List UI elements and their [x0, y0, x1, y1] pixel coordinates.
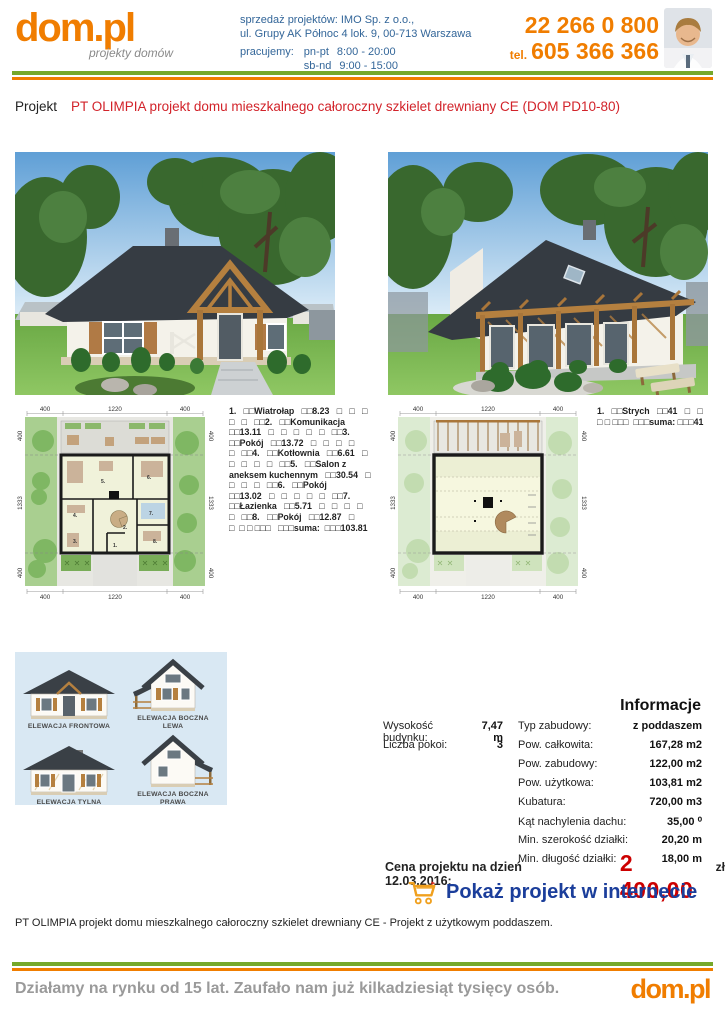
spec-row: Pow. całkowita: 167,28 m2	[518, 739, 702, 758]
footer-tagline: Działamy na rynku od 15 lat. Zaufało nam…	[15, 980, 559, 998]
ground-floor-room-list: 1. □□Wiatrołap □□8.23 □ □ □ □ □ □□2. □□K…	[229, 406, 379, 533]
plan-room-number: 8.	[153, 539, 158, 545]
header-rule-orange	[12, 77, 713, 80]
site-plan-ground-floor: 400 1220 400 400 1220 400 400 1333 400 4…	[15, 403, 215, 600]
cta-label: Pokaż projekt w internecie	[446, 881, 697, 904]
elevation-side-right: ELEWACJA BOCZNA PRAWA	[121, 732, 225, 808]
plan-room-number: 3.	[73, 539, 78, 545]
elevation-side-right-image	[123, 732, 223, 790]
header-rule-green	[12, 71, 713, 75]
sales-line-2: ul. Grupy AK Północ 4 lok. 9, 00-713 War…	[240, 27, 471, 41]
sales-line-1: sprzedaż projektów: IMO Sp. z o.o.,	[240, 13, 471, 27]
elevation-label: ELEWACJA TYLNA	[24, 799, 114, 807]
spec-value: 103,81 m2	[649, 777, 702, 789]
dim-label: 400	[40, 406, 51, 413]
spec-value: 20,20 m	[662, 834, 702, 846]
dim-label: 1333	[390, 496, 397, 510]
footer-logo: dom.pl	[631, 974, 711, 1005]
dim-label: 1220	[481, 594, 495, 600]
spec-value: z poddaszem	[633, 720, 702, 732]
spec-label: Kąt nachylenia dachu:	[518, 816, 626, 828]
hours-label: pracujemy:	[240, 45, 294, 74]
elevation-label: ELEWACJA BOCZNA LEWA	[128, 715, 218, 732]
dim-label: 1220	[108, 406, 122, 413]
header-contact-block: sprzedaż projektów: IMO Sp. z o.o., ul. …	[240, 13, 471, 73]
house-front-render-image	[15, 152, 335, 395]
plan-room-number: 1.	[113, 543, 118, 549]
spec-label: Liczba pokoi:	[383, 739, 447, 751]
header-phones: 22 266 0 800 tel.605 366 366	[510, 12, 659, 65]
spec-label: Min. szerokość działki:	[518, 834, 628, 846]
dim-label: 1220	[108, 594, 122, 600]
site-plan-attic: 400 1220 400 400 1220 400 400 1333 400 4…	[388, 403, 588, 600]
elevation-front-image	[19, 664, 119, 722]
ground-floor-plan-image: 400 1220 400 400 1220 400 400 1333 400 4…	[15, 403, 215, 600]
spec-row: Typ zabudowy: z poddaszem	[518, 720, 702, 739]
dim-label: 400	[17, 430, 24, 441]
render-garden-view	[388, 152, 708, 395]
dim-label: 400	[580, 568, 587, 579]
project-title-label: Projekt	[15, 99, 57, 114]
header-logo[interactable]: dom.pl projekty domów	[15, 8, 175, 60]
spec-value: 3	[497, 739, 503, 751]
attic-room-list: 1. □□Strych □□41 □ □ □ □ □□□ □□□suma: □□…	[597, 406, 721, 427]
spec-label: Pow. zabudowy:	[518, 758, 598, 770]
elevation-label: ELEWACJA BOCZNA PRAWA	[128, 791, 218, 808]
dim-label: 400	[413, 594, 424, 600]
plan-room-number: 6.	[147, 475, 152, 481]
spec-row: Kąt nachylenia dachu: 35,00 ⁰	[518, 815, 702, 834]
dim-label: 1333	[207, 496, 214, 510]
building-specs-left: Wysokość budynku: 7,47 m Liczba pokoi: 3	[383, 720, 503, 758]
dim-label: 400	[553, 594, 564, 600]
plan-room-number: 2.	[123, 525, 128, 531]
project-description: PT OLIMPIA projekt domu mieszkalnego cał…	[15, 917, 553, 929]
phone-secondary: 605 366 366	[531, 38, 659, 64]
plan-room-number: 7.	[149, 511, 154, 517]
elevation-label: ELEWACJA FRONTOWA	[24, 723, 114, 731]
house-garden-render-image	[388, 152, 708, 395]
elevations-panel: ELEWACJA FRONTOWA ELEWACJA BOCZNA LEWA	[15, 652, 227, 805]
shopping-cart-icon	[407, 879, 437, 906]
dim-label: 400	[17, 567, 24, 578]
project-title-row: ProjektPT OLIMPIA projekt domu mieszkaln…	[15, 99, 620, 114]
dim-label: 400	[40, 594, 51, 600]
footer-rule-orange	[12, 968, 713, 971]
hours-weekdays-value: 8:00 - 20:00	[337, 45, 396, 59]
dim-label: 400	[413, 406, 424, 413]
plan-room-number: 4.	[73, 513, 78, 519]
elevation-front: ELEWACJA FRONTOWA	[17, 656, 121, 732]
person-icon	[664, 8, 712, 68]
dim-label: 1220	[481, 406, 495, 413]
dim-label: 1333	[580, 496, 587, 510]
project-title-text: PT OLIMPIA projekt domu mieszkalnego cał…	[71, 99, 620, 114]
footer-rule-green	[12, 962, 713, 966]
render-front-view	[15, 152, 335, 395]
price-currency: zł	[716, 860, 725, 874]
dim-label: 1333	[17, 496, 24, 510]
dim-label: 400	[390, 567, 397, 578]
dim-label: 400	[180, 406, 191, 413]
spec-value: 35,00 ⁰	[667, 815, 702, 828]
spec-value: 122,00 m2	[649, 758, 702, 770]
attic-plan-image: 400 1220 400 400 1220 400 400 1333 400 4…	[388, 403, 588, 600]
spec-row: Kubatura: 720,00 m3	[518, 796, 702, 815]
dim-label: 400	[390, 430, 397, 441]
elevation-rear-image	[19, 740, 119, 798]
phone-tel-label: tel.	[510, 48, 527, 62]
info-heading: Informacje	[620, 697, 701, 715]
spec-row: Wysokość budynku: 7,47 m	[383, 720, 503, 739]
hours-weekdays-label: pn-pt	[304, 45, 329, 59]
spec-label: Pow. całkowita:	[518, 739, 593, 751]
dim-label: 400	[580, 431, 587, 442]
dim-label: 400	[207, 431, 214, 442]
plan-room-number: 5.	[101, 479, 106, 485]
phone-primary: 22 266 0 800	[510, 12, 659, 38]
dim-label: 400	[207, 568, 214, 579]
spec-label: Kubatura:	[518, 796, 566, 808]
logo-wordmark: dom.pl	[15, 8, 175, 48]
dim-label: 400	[553, 406, 564, 413]
elevation-rear: ELEWACJA TYLNA	[17, 732, 121, 808]
spec-row: Pow. użytkowa: 103,81 m2	[518, 777, 702, 796]
spec-label: Pow. użytkowa:	[518, 777, 594, 789]
spec-value: 720,00 m3	[649, 796, 702, 808]
spec-value: 167,28 m2	[649, 739, 702, 751]
elevation-side-left: ELEWACJA BOCZNA LEWA	[121, 656, 225, 732]
spec-row: Pow. zabudowy: 122,00 m2	[518, 758, 702, 777]
dim-label: 400	[180, 594, 191, 600]
elevation-side-left-image	[123, 656, 223, 714]
page: dom.pl projekty domów sprzedaż projektów…	[0, 0, 725, 1024]
show-project-online-link[interactable]: Pokaż projekt w internecie	[407, 879, 697, 906]
consultant-photo	[664, 8, 712, 68]
spec-label: Typ zabudowy:	[518, 720, 591, 732]
